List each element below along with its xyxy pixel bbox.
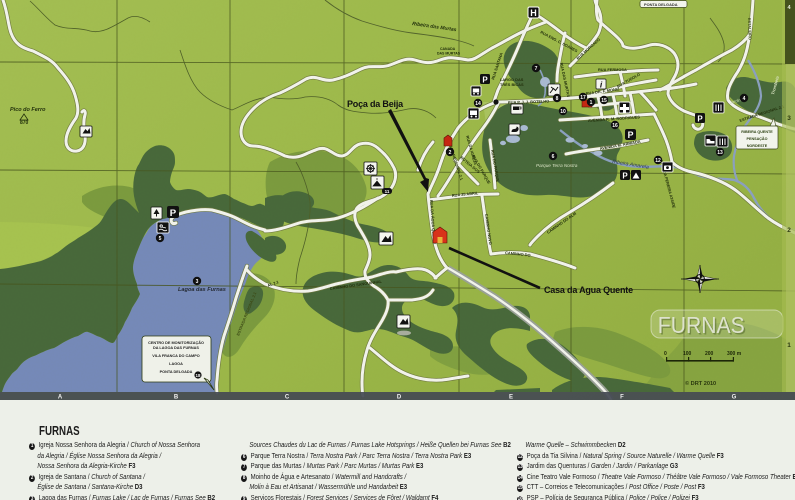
svg-text:200: 200 xyxy=(705,351,714,357)
svg-text:Lagoa das Furnas: Lagoa das Furnas xyxy=(178,287,226,293)
svg-text:3: 3 xyxy=(787,115,791,122)
svg-text:CENTRO DE MONITORIZAÇÃO: CENTRO DE MONITORIZAÇÃO xyxy=(148,340,204,345)
svg-text:FURNAS: FURNAS xyxy=(658,312,745,338)
svg-text:1: 1 xyxy=(787,342,791,349)
svg-text:DAS MURTAS: DAS MURTAS xyxy=(437,52,461,56)
svg-text:VILA FRANCA DO CAMPO: VILA FRANCA DO CAMPO xyxy=(152,354,199,358)
svg-text:G: G xyxy=(732,395,737,400)
svg-text:10: 10 xyxy=(560,109,566,115)
svg-text:Parque Terra Nostra: Parque Terra Nostra xyxy=(536,163,578,168)
svg-text:DA LAGOA DAS FURNAS: DA LAGOA DAS FURNAS xyxy=(153,346,199,350)
svg-text:Pico do Ferro: Pico do Ferro xyxy=(10,107,46,113)
svg-text:© DRT 2010: © DRT 2010 xyxy=(685,380,716,387)
svg-text:P: P xyxy=(170,208,177,219)
svg-text:D: D xyxy=(397,395,402,400)
svg-text:CANADA: CANADA xyxy=(440,47,456,51)
svg-text:ESTALEIRO: ESTALEIRO xyxy=(747,18,753,40)
svg-text:2: 2 xyxy=(787,227,791,234)
svg-text:P: P xyxy=(697,114,703,123)
svg-text:P: P xyxy=(628,130,634,140)
svg-text:12: 12 xyxy=(655,158,661,164)
svg-text:3: 3 xyxy=(196,279,199,285)
svg-text:4: 4 xyxy=(743,96,746,102)
svg-text:NORDESTE: NORDESTE xyxy=(747,144,768,148)
svg-text:Poça da Beija: Poça da Beija xyxy=(347,99,404,109)
svg-text:Casa da Agua Quente: Casa da Agua Quente xyxy=(544,285,633,295)
svg-text:TRÊS BICAS: TRÊS BICAS xyxy=(500,82,524,87)
svg-text:P: P xyxy=(482,75,488,84)
svg-text:6: 6 xyxy=(552,154,555,160)
svg-text:15: 15 xyxy=(601,98,607,104)
svg-text:PENSAÇÃO: PENSAÇÃO xyxy=(747,136,768,141)
svg-text:PONTA DELGADA: PONTA DELGADA xyxy=(644,2,678,7)
svg-text:C: C xyxy=(285,395,290,400)
svg-text:LAGOA: LAGOA xyxy=(169,362,183,366)
svg-text:11: 11 xyxy=(385,189,390,194)
svg-text:100: 100 xyxy=(683,351,692,357)
svg-text:870: 870 xyxy=(20,120,29,126)
svg-text:300 m: 300 m xyxy=(727,351,742,357)
svg-text:17: 17 xyxy=(580,95,586,101)
svg-text:E: E xyxy=(509,395,513,400)
svg-text:5: 5 xyxy=(159,236,162,242)
svg-text:7: 7 xyxy=(535,66,538,72)
svg-text:PONTA DELGADA: PONTA DELGADA xyxy=(160,370,193,374)
svg-text:P: P xyxy=(622,171,628,180)
svg-text:RUA FERMOSA: RUA FERMOSA xyxy=(598,67,627,72)
svg-text:B: B xyxy=(174,395,179,400)
svg-text:2: 2 xyxy=(449,150,452,156)
svg-text:14: 14 xyxy=(475,101,481,107)
svg-text:8: 8 xyxy=(556,96,559,102)
svg-text:18: 18 xyxy=(196,373,201,378)
svg-text:13: 13 xyxy=(717,150,723,156)
svg-text:0: 0 xyxy=(664,351,667,357)
svg-text:H: H xyxy=(530,8,537,18)
svg-text:16: 16 xyxy=(612,123,618,129)
svg-text:A: A xyxy=(58,395,63,400)
svg-text:1: 1 xyxy=(590,100,593,106)
svg-text:F: F xyxy=(620,395,624,400)
svg-text:RIBEIRA QUENTE: RIBEIRA QUENTE xyxy=(741,130,773,134)
